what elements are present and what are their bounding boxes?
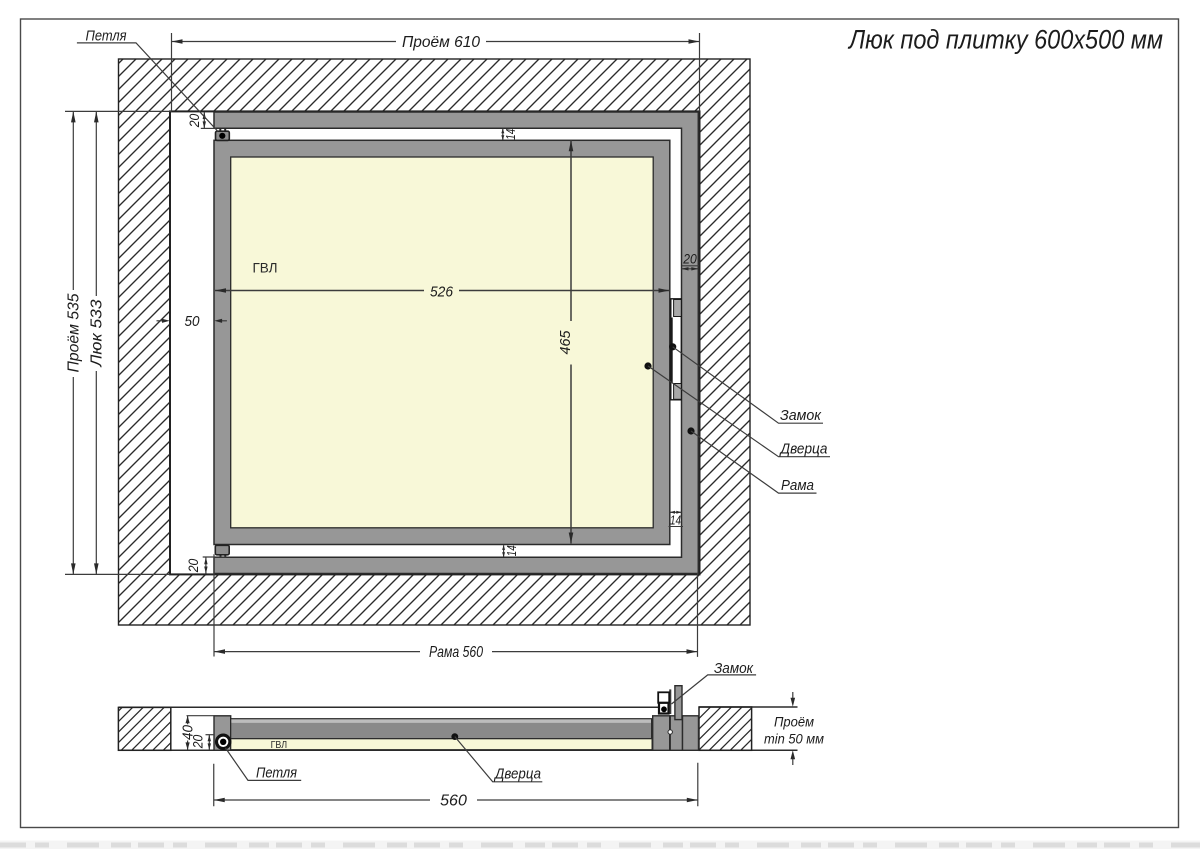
svg-text:Замок: Замок	[780, 408, 822, 424]
svg-text:50: 50	[185, 313, 201, 330]
svg-text:20: 20	[682, 251, 697, 267]
svg-text:Проём 535: Проём 535	[66, 293, 83, 372]
svg-text:Дверца: Дверца	[493, 767, 541, 783]
svg-text:Проём 610: Проём 610	[402, 34, 480, 51]
svg-text:14: 14	[503, 129, 518, 140]
svg-text:465: 465	[557, 330, 574, 355]
svg-text:Дверца: Дверца	[779, 442, 828, 458]
svg-text:20: 20	[186, 114, 202, 129]
svg-text:Рама: Рама	[781, 478, 814, 494]
svg-text:Проём: Проём	[774, 714, 814, 730]
svg-text:20: 20	[190, 734, 205, 749]
svg-text:Люк 533: Люк 533	[89, 299, 106, 367]
svg-text:Рама 560: Рама 560	[429, 644, 483, 661]
svg-text:Люк под плитку 600х500 мм: Люк под плитку 600х500 мм	[847, 25, 1163, 55]
svg-text:ГВЛ: ГВЛ	[253, 261, 278, 276]
svg-text:min 50 мм: min 50 мм	[764, 731, 824, 747]
svg-text:526: 526	[430, 284, 454, 301]
svg-text:Петля: Петля	[86, 29, 127, 45]
svg-text:14: 14	[670, 513, 681, 528]
svg-text:ГВЛ: ГВЛ	[271, 739, 288, 751]
svg-text:Петля: Петля	[256, 766, 297, 782]
svg-text:14: 14	[504, 545, 519, 556]
svg-text:560: 560	[440, 793, 467, 810]
svg-text:20: 20	[185, 559, 201, 574]
